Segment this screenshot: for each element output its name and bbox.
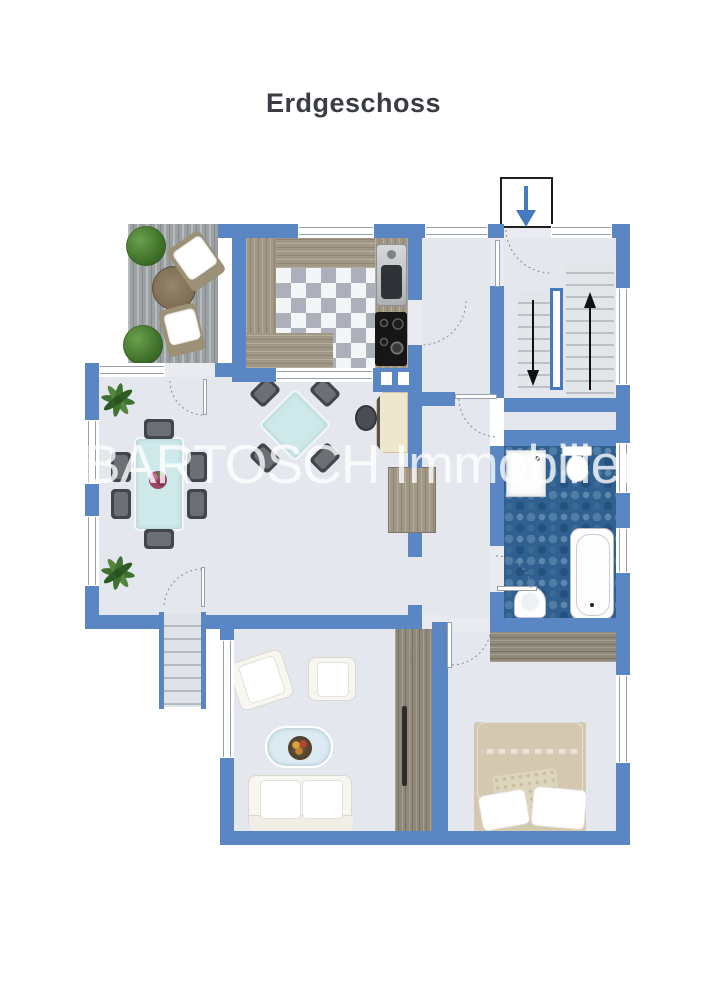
wall [616, 238, 630, 288]
wall [220, 758, 234, 832]
wall [490, 286, 504, 398]
wall [232, 238, 246, 368]
bathroom-door-leaf [497, 586, 537, 591]
terrace-bush [126, 226, 166, 266]
kitchen-counter-top [276, 238, 375, 268]
sink-faucet [387, 250, 396, 259]
wall [85, 363, 99, 377]
dining-window [85, 516, 99, 586]
hall-door-leaf [455, 394, 497, 399]
coffee-table [265, 726, 333, 768]
kitchen-sink [376, 244, 407, 306]
sofa-cushion [302, 780, 343, 819]
kitchen-door-gap [408, 300, 422, 345]
sofa-cushion [260, 780, 301, 819]
stairs-railing [550, 288, 563, 390]
watermark: BARTOSCH Immobilien [84, 432, 650, 496]
wall [408, 533, 422, 557]
living-wardrobe [395, 629, 432, 836]
wall [422, 392, 455, 406]
ext-stairs-steps [164, 614, 201, 707]
armchair [308, 657, 356, 701]
page-title: Erdgeschoss [0, 88, 707, 119]
wall [432, 622, 448, 831]
wall [215, 363, 246, 377]
kitchen-hatch-window [276, 368, 373, 382]
wall [408, 605, 422, 629]
room-door-leaf [447, 622, 452, 668]
fruit-bowl [288, 736, 312, 760]
vestibule-floor [422, 238, 490, 392]
bedroom-window [616, 675, 630, 763]
bathtub-drain [590, 603, 594, 607]
dining-chair [144, 529, 174, 549]
kitchen-counter-block [246, 333, 333, 368]
wall [85, 615, 163, 629]
kitchen-window [298, 224, 374, 238]
landing-floor [504, 412, 616, 430]
duvet-trim [481, 749, 579, 754]
terrace-bush [123, 325, 163, 365]
vestibule-door-leaf [495, 240, 500, 287]
wall [220, 831, 630, 845]
armchair-cushion [317, 662, 349, 697]
wall [408, 345, 422, 368]
dining-window [99, 363, 165, 377]
wall [85, 586, 99, 615]
stairhall-window [551, 224, 612, 238]
sofa [248, 775, 352, 830]
wall [616, 573, 630, 675]
stairs-window [616, 288, 630, 385]
kitchen-stove [375, 312, 407, 366]
bathroom-window [616, 528, 630, 573]
stairs-flight-down [518, 292, 552, 388]
hall-window [425, 224, 488, 238]
terrace-door-gap [165, 363, 215, 377]
wall [504, 398, 618, 412]
wall [490, 618, 616, 632]
wall [373, 368, 422, 392]
wall [85, 377, 99, 420]
wall [374, 224, 425, 238]
bathtub [570, 528, 614, 620]
wardrobe-handle [402, 706, 407, 786]
living-window [220, 640, 234, 758]
wall [616, 493, 630, 528]
wall [218, 224, 298, 238]
wall [220, 615, 234, 640]
pass-through-window [381, 372, 392, 385]
pass-through-window [398, 372, 409, 385]
wall [612, 224, 630, 238]
entrance-marker-box [500, 177, 553, 228]
bedroom-wardrobe [490, 632, 616, 662]
desk-chair [355, 405, 377, 431]
terrace-door-leaf [203, 379, 207, 415]
wall [490, 592, 504, 618]
wall [205, 615, 420, 629]
floor-plan-page: Erdgeschoss [0, 0, 707, 1000]
armchair-cushion [238, 655, 287, 705]
lounger-cushion [163, 307, 202, 346]
sink-basin [381, 265, 402, 299]
washbasin-inner [521, 593, 539, 611]
stairs-flight-up [566, 262, 614, 398]
bedroom-door-gap [451, 618, 490, 632]
bed-pillow [530, 786, 587, 831]
wall [408, 238, 422, 300]
wall [488, 224, 504, 238]
garden-door-leaf [201, 567, 205, 607]
